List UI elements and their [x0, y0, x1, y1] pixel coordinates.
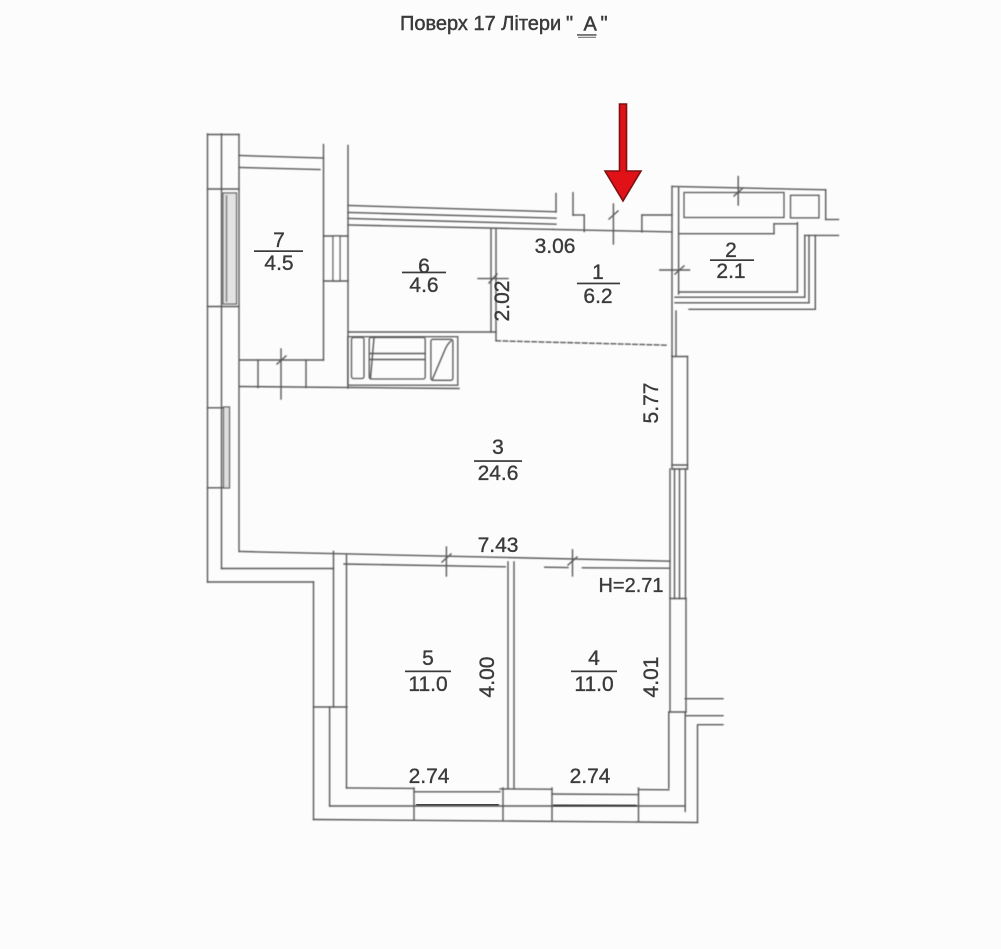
- svg-text:": ": [566, 13, 573, 35]
- svg-text:1: 1: [592, 261, 604, 284]
- svg-text:24.6: 24.6: [478, 462, 519, 485]
- svg-text:7.43: 7.43: [478, 534, 519, 557]
- svg-text:4: 4: [588, 647, 600, 670]
- svg-text:6.2: 6.2: [583, 285, 612, 308]
- svg-text:4.5: 4.5: [264, 252, 293, 275]
- svg-text:11.0: 11.0: [408, 673, 447, 696]
- svg-text:4.6: 4.6: [409, 274, 438, 297]
- svg-text:2.74: 2.74: [570, 765, 611, 788]
- svg-text:Поверх 17 Літери: Поверх 17 Літери: [400, 13, 561, 35]
- svg-text:": ": [601, 13, 608, 35]
- svg-text:11.0: 11.0: [574, 673, 613, 696]
- svg-text:5: 5: [422, 647, 434, 670]
- svg-text:H=2.71: H=2.71: [598, 575, 663, 597]
- svg-text:А: А: [584, 14, 598, 36]
- svg-text:3: 3: [492, 436, 504, 459]
- svg-text:4.00: 4.00: [476, 657, 499, 698]
- svg-text:3.06: 3.06: [535, 235, 576, 258]
- svg-text:2.02: 2.02: [491, 281, 514, 322]
- svg-text:2.1: 2.1: [716, 260, 745, 283]
- svg-text:2: 2: [725, 239, 737, 262]
- svg-text:2.74: 2.74: [409, 765, 450, 788]
- svg-text:4.01: 4.01: [640, 657, 663, 698]
- svg-text:5.77: 5.77: [640, 383, 663, 424]
- svg-text:7: 7: [273, 229, 285, 252]
